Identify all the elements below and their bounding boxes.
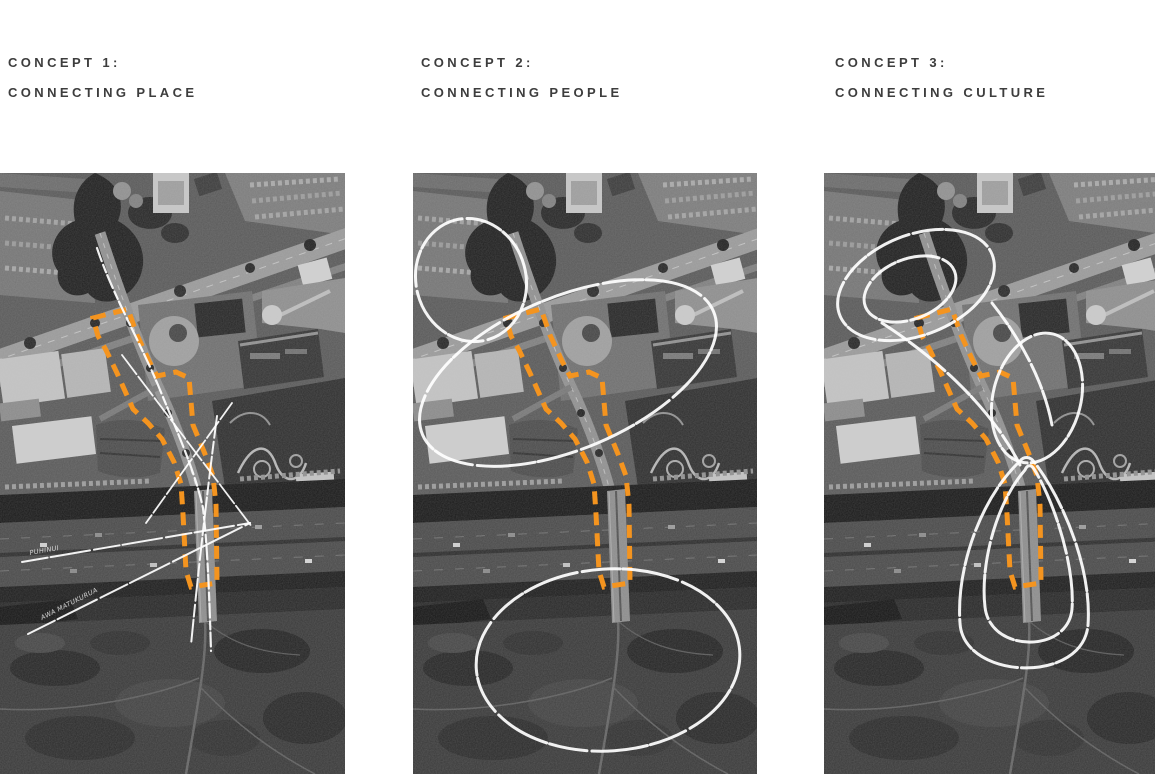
concept-2-map: [413, 173, 757, 774]
concept-3-panel: [824, 173, 1155, 774]
aerial-basemap: [824, 173, 1155, 774]
concept-2-panel: [413, 173, 757, 774]
concept-3-number: CONCEPT 3:: [835, 48, 1048, 78]
concept-2-number: CONCEPT 2:: [421, 48, 623, 78]
concept-3-title: CONCEPT 3: CONNECTING CULTURE: [835, 48, 1048, 108]
concept-1-map: PUHINUI AWA MATUKURUA: [0, 173, 345, 774]
concept-1-panel: PUHINUI AWA MATUKURUA: [0, 173, 345, 774]
concept-1-name: CONNECTING PLACE: [8, 78, 197, 108]
aerial-basemap: [0, 173, 345, 774]
aerial-basemap: [413, 173, 757, 774]
concept-1-title: CONCEPT 1: CONNECTING PLACE: [8, 48, 197, 108]
concept-2-name: CONNECTING PEOPLE: [421, 78, 623, 108]
concept-3-name: CONNECTING CULTURE: [835, 78, 1048, 108]
concept-1-number: CONCEPT 1:: [8, 48, 197, 78]
concept-2-title: CONCEPT 2: CONNECTING PEOPLE: [421, 48, 623, 108]
concept-3-map: [824, 173, 1155, 774]
